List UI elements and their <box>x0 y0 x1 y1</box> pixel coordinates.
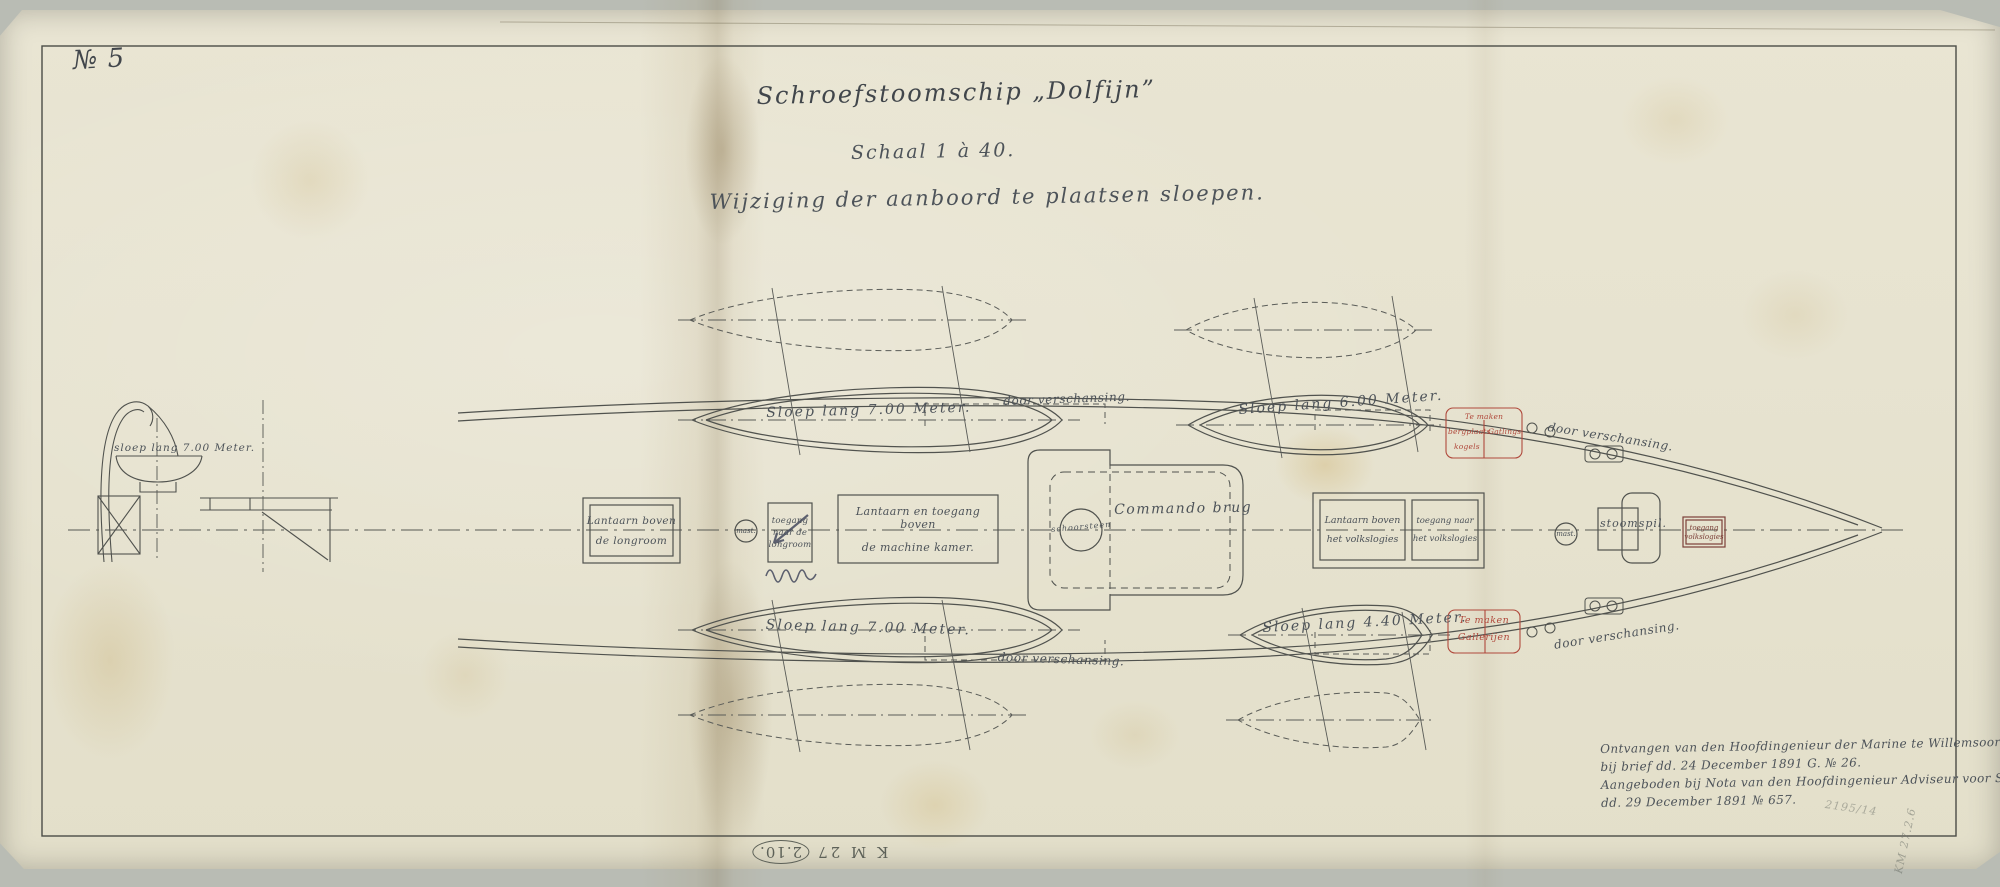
companion-longroom-label: toegangnaar delongroom <box>768 505 812 560</box>
mast-main-label: mast. <box>1555 523 1577 545</box>
bridge-label: Commando brug <box>1114 500 1252 518</box>
section-davit <box>101 402 148 562</box>
red-note-lower: Te maken Gallerijen <box>1448 610 1520 653</box>
drawing-scale: Schaal 1 à 40. <box>851 139 1016 164</box>
skylight-engine-label: Lantaarn en toegang bovende machine kame… <box>838 495 998 563</box>
scanned-ship-drawing: { "sheet": { "number": "№ 5" }, "header"… <box>0 0 2000 887</box>
hatch-crew-label: toegangvolkslogies <box>1683 518 1725 546</box>
section-boat-label: sloep lang 7.00 Meter. <box>114 442 255 454</box>
skylight-crew-label: Lantaarn bovenhet volkslogies <box>1320 500 1405 560</box>
sheet-number: № 5 <box>72 43 126 76</box>
companion-crew-label: toegang naarhet volkslogies <box>1412 500 1478 560</box>
pencil-scribble <box>766 570 816 582</box>
capstan-label: stoomspil. <box>1600 517 1667 530</box>
archive-stamp: K M 27 2.10. <box>752 840 888 864</box>
mast-fore-label: mast. <box>735 520 757 542</box>
red-note-upper: Te maken bergplaats Gatlings kogels <box>1446 408 1522 458</box>
skylight-longroom-label: Lantaarn bovende longroom <box>583 498 680 563</box>
registration-note: Ontvangen van den Hoofdingenieur der Mar… <box>1600 734 1971 812</box>
stamp-circled-number: 2.10. <box>752 840 809 864</box>
